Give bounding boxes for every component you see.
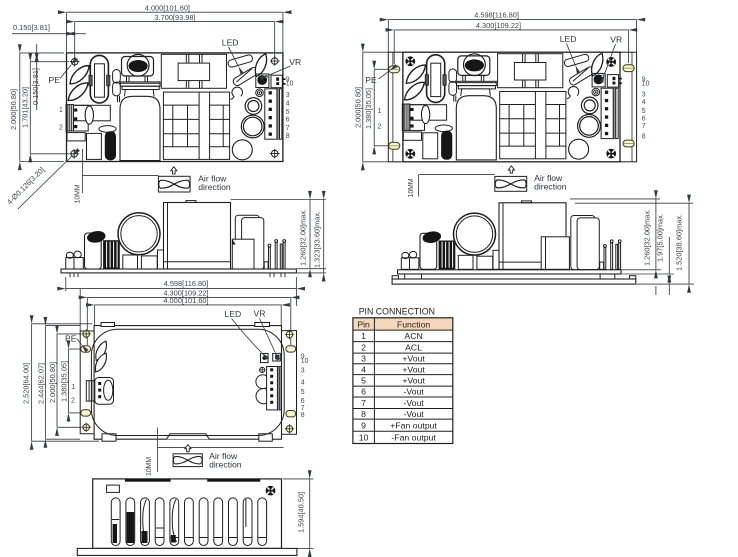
svg-text:-Fan output: -Fan output	[391, 433, 436, 443]
svg-text:2: 2	[361, 343, 366, 353]
svg-text:PIN CONNECTION: PIN CONNECTION	[359, 307, 435, 317]
svg-text:2: 2	[71, 398, 75, 405]
svg-text:10MM: 10MM	[75, 184, 82, 203]
svg-text:10MM: 10MM	[146, 457, 153, 476]
svg-text:3: 3	[361, 354, 366, 364]
svg-text:4.000[101.60]: 4.000[101.60]	[163, 296, 208, 305]
svg-text:2.444[62.07]: 2.444[62.07]	[36, 363, 45, 404]
svg-text:3: 3	[301, 368, 305, 375]
svg-text:VR: VR	[289, 57, 301, 67]
svg-text:10: 10	[301, 358, 309, 365]
svg-text:+Vout: +Vout	[402, 354, 425, 364]
svg-text:4.598[116.80]: 4.598[116.80]	[474, 11, 519, 20]
svg-text:VR: VR	[254, 309, 266, 319]
svg-text:5: 5	[361, 376, 366, 386]
svg-text:1.380[35.05]: 1.380[35.05]	[364, 88, 373, 129]
svg-text:4: 4	[286, 101, 290, 108]
svg-text:2: 2	[59, 124, 63, 131]
svg-text:6: 6	[361, 387, 366, 397]
svg-text:8: 8	[642, 134, 646, 141]
svg-text:-Vout: -Vout	[403, 409, 424, 419]
svg-text:4: 4	[642, 99, 646, 106]
svg-text:1.97[5.00]max.: 1.97[5.00]max.	[656, 213, 665, 262]
svg-text:1.380[35.05]: 1.380[35.05]	[59, 361, 68, 402]
svg-text:+Fan output: +Fan output	[390, 420, 437, 430]
svg-text:7: 7	[361, 398, 366, 408]
svg-text:+Vout: +Vout	[402, 376, 425, 386]
svg-text:8: 8	[361, 409, 366, 419]
svg-text:direction: direction	[534, 182, 567, 192]
svg-text:1.594[40.50]: 1.594[40.50]	[296, 492, 305, 533]
svg-text:PE: PE	[365, 75, 377, 85]
svg-text:LED: LED	[225, 309, 242, 319]
svg-text:4-Ø0.126[3.20]: 4-Ø0.126[3.20]	[5, 165, 46, 206]
svg-text:4.300[109.22]: 4.300[109.22]	[476, 21, 521, 30]
svg-text:10: 10	[642, 81, 650, 88]
svg-text:Pin: Pin	[357, 319, 370, 329]
svg-text:1.520[38.60]max.: 1.520[38.60]max.	[675, 214, 684, 271]
svg-text:10: 10	[359, 433, 369, 443]
svg-text:2.000[50.80]: 2.000[50.80]	[48, 362, 57, 403]
svg-text:LED: LED	[222, 37, 239, 47]
svg-text:PE: PE	[49, 75, 61, 85]
svg-text:6: 6	[642, 115, 646, 122]
svg-text:Function: Function	[397, 319, 430, 329]
svg-text:direction: direction	[198, 182, 231, 192]
svg-text:ACL: ACL	[405, 343, 422, 353]
svg-text:5: 5	[642, 108, 646, 115]
svg-text:8: 8	[301, 412, 305, 419]
svg-text:VR: VR	[610, 34, 622, 44]
svg-text:3.700[93.98]: 3.700[93.98]	[154, 13, 195, 22]
svg-text:ACN: ACN	[404, 331, 422, 341]
svg-text:9: 9	[361, 420, 366, 430]
svg-text:1: 1	[59, 107, 63, 114]
svg-text:4.598[116.80]: 4.598[116.80]	[164, 279, 209, 288]
svg-text:8: 8	[286, 133, 290, 140]
svg-text:10MM: 10MM	[408, 178, 415, 197]
svg-text:4: 4	[361, 364, 366, 374]
svg-text:0.150[3.81]: 0.150[3.81]	[31, 68, 40, 105]
svg-text:4: 4	[301, 379, 305, 386]
svg-text:1: 1	[378, 108, 382, 115]
svg-text:7: 7	[286, 125, 290, 132]
svg-text:2: 2	[378, 124, 382, 131]
svg-text:3: 3	[286, 92, 290, 99]
svg-text:7: 7	[642, 123, 646, 130]
svg-text:2.000[50.80]: 2.000[50.80]	[9, 89, 18, 130]
svg-text:-Vout: -Vout	[403, 398, 424, 408]
svg-text:6: 6	[286, 117, 290, 124]
svg-text:direction: direction	[209, 459, 242, 469]
svg-text:10: 10	[286, 81, 294, 88]
svg-text:1: 1	[361, 331, 366, 341]
svg-text:2.000[50.80]: 2.000[50.80]	[353, 87, 362, 128]
svg-text:3: 3	[642, 91, 646, 98]
svg-text:1.701[43.20]: 1.701[43.20]	[21, 87, 30, 128]
svg-text:5: 5	[301, 389, 305, 396]
svg-text:1: 1	[72, 384, 76, 391]
svg-text:PE: PE	[65, 334, 77, 344]
svg-text:1.260[32.00]max.: 1.260[32.00]max.	[643, 209, 652, 266]
svg-text:1.260[32.00]max.: 1.260[32.00]max.	[298, 209, 307, 266]
svg-text:+Vout: +Vout	[402, 364, 425, 374]
svg-text:7: 7	[301, 405, 305, 412]
svg-text:2.520[64.00]: 2.520[64.00]	[22, 363, 31, 404]
svg-text:4.000[101.60]: 4.000[101.60]	[145, 3, 190, 12]
svg-text:1.323[33.60]max.: 1.323[33.60]max.	[312, 211, 321, 268]
svg-text:0.150[3.81]: 0.150[3.81]	[13, 23, 50, 32]
svg-text:-Vout: -Vout	[403, 387, 424, 397]
svg-text:5: 5	[286, 109, 290, 116]
svg-text:LED: LED	[560, 34, 577, 44]
